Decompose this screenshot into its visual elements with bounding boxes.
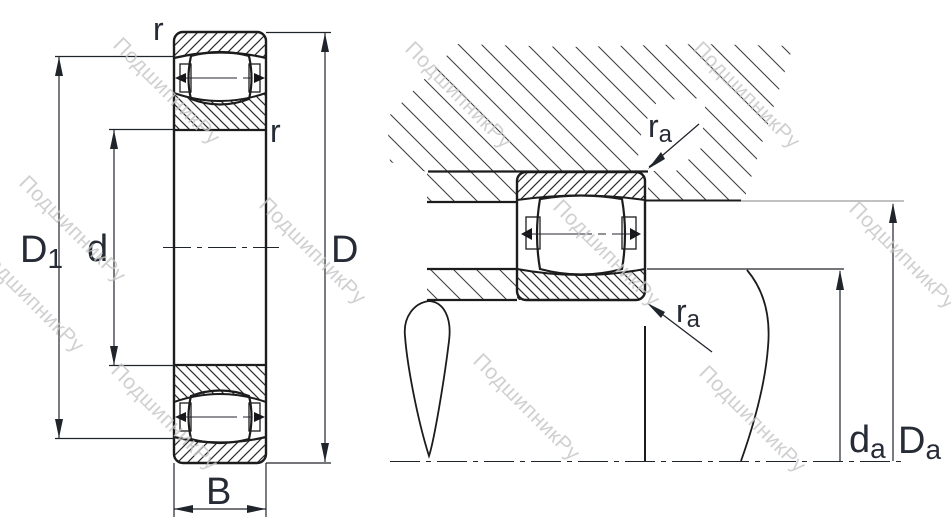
label-D1: D1 (20, 229, 63, 274)
bearing-drawing-svg: r r D1 d D B (0, 0, 951, 532)
label-da: da (849, 419, 886, 464)
label-ra-bottom: ra (676, 293, 701, 333)
label-Da: Da (898, 420, 941, 465)
dimension-da: da (836, 270, 886, 464)
label-B: B (206, 471, 231, 513)
technical-drawing-page: r r D1 d D B (0, 0, 951, 532)
label-r-side: r (270, 113, 281, 149)
shaft-shoulder-left (427, 269, 517, 300)
watermark-text: ПодшипникРу (694, 361, 810, 477)
shaft-break-outline (405, 301, 450, 456)
watermark-text: ПодшипникРу (468, 349, 584, 465)
label-r-top: r (153, 11, 164, 47)
watermark-layer: ПодшипникРу ПодшипникРу ПодшипникРу Подш… (0, 33, 951, 477)
watermark-text: ПодшипникРу (844, 197, 951, 313)
